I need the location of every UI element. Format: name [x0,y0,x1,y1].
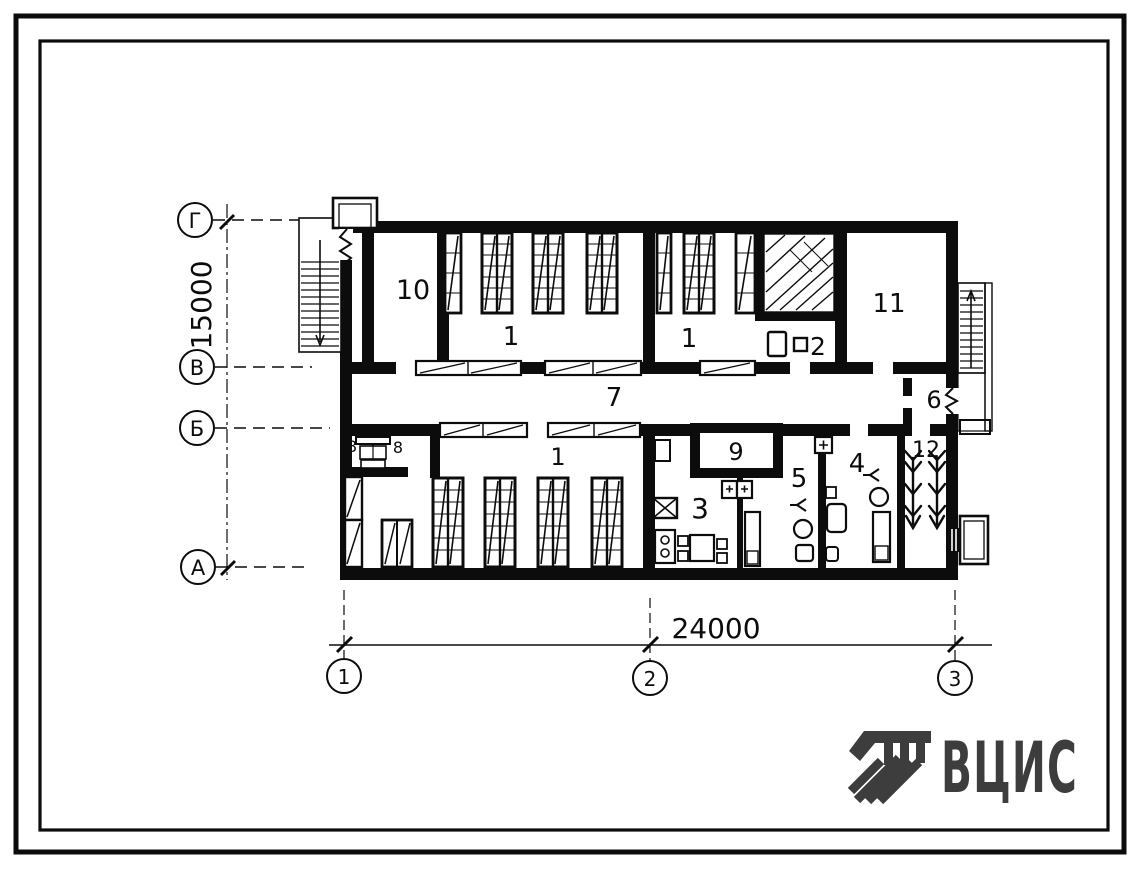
room-label-12: 12 [912,438,940,463]
room-label-10: 10 [396,275,430,306]
axis-label-row-2: Б [190,417,204,441]
axis-label-row-1: В [190,356,204,380]
storage-racks-bottom [345,477,622,567]
floor-plan: 10 1 1 2 11 7 6 8 8 1 3 9 5 4 12 [299,198,992,580]
room-label-1c: 1 [550,443,565,471]
room-label-1b: 1 [681,324,698,354]
room-label-8r: 8 [393,438,403,457]
room-4-furniture [826,469,890,562]
axis-label-col-1: 2 [644,667,657,691]
hatched-chamber [763,233,835,313]
drawing-sheet: Г В Б А 15000 24000 1 2 3 [0,0,1139,869]
room-label-2: 2 [810,332,826,361]
axis-label-col-0: 1 [338,665,351,689]
axis-label-col-2: 3 [949,667,962,691]
axis-label-row-3: А [191,556,206,580]
room-2-equipment [768,332,807,356]
room-8-desks [356,437,390,468]
room-label-9: 9 [728,438,743,466]
room-5-furniture [745,499,813,566]
room-label-11: 11 [872,289,905,319]
room-label-6: 6 [926,386,941,414]
dimension-vertical: 15000 [185,260,218,349]
room-label-1a: 1 [503,322,520,352]
storage-racks-top [445,233,755,313]
dimension-horizontal: 24000 [671,612,760,645]
room-label-8l: 8 [347,437,357,456]
room-label-4: 4 [849,449,866,479]
axis-cols: 24000 1 2 3 [327,590,992,695]
room-label-5: 5 [791,464,808,494]
vcis-logo: ВЦИС [849,727,1078,809]
vcis-logo-text: ВЦИС [941,727,1078,809]
axis-label-row-0: Г [189,209,202,233]
room-label-3: 3 [691,492,709,525]
vcis-logo-emblem [849,731,931,801]
room-label-7: 7 [606,383,623,413]
